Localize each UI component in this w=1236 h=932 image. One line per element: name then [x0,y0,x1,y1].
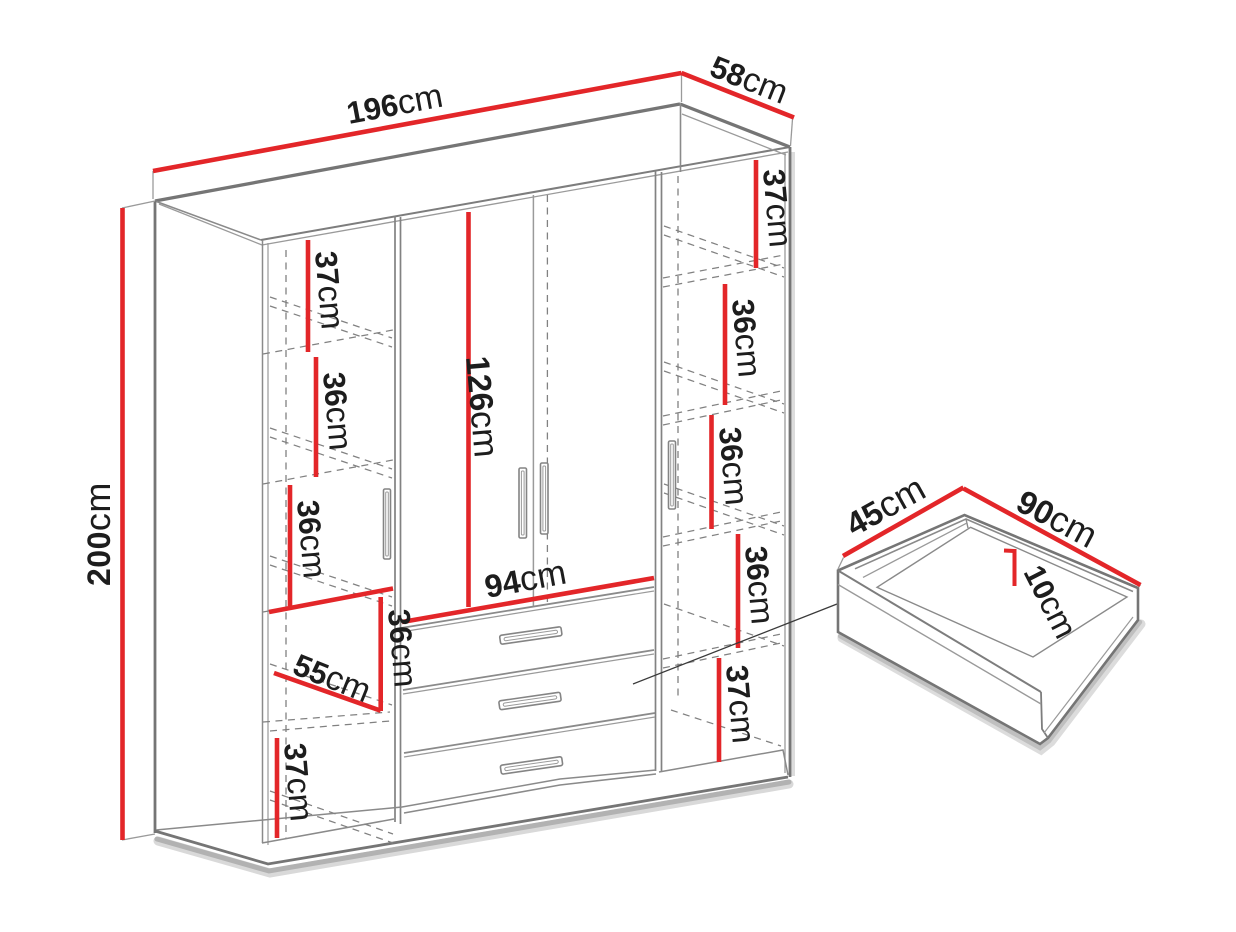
svg-text:200cm: 200cm [77,482,118,586]
